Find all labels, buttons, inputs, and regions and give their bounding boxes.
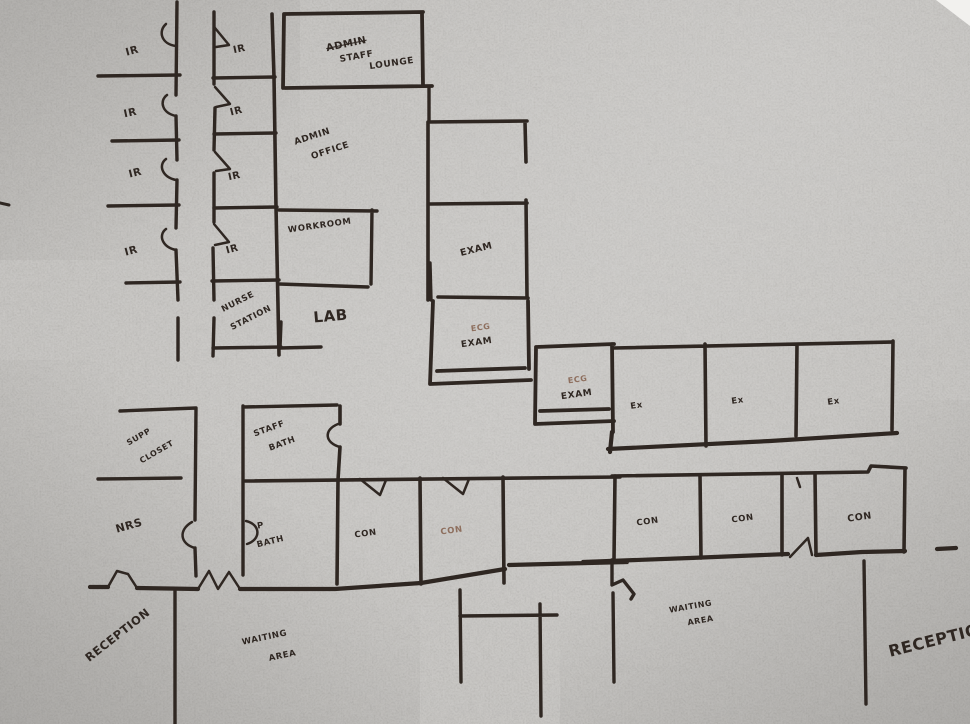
floor-plan-sketch: IRIRIRIRIRIRIRIRADMINSTAFFLOUNGEADMINOFF… <box>0 0 970 724</box>
floor-plan-photo: IRIRIRIRIRIRIRIRADMINSTAFFLOUNGEADMINOFF… <box>0 0 970 724</box>
label-ex-1: Ex <box>630 400 644 412</box>
label-ex-3: Ex <box>827 396 841 408</box>
label-lab: LAB <box>313 306 349 327</box>
label-ex-2: Ex <box>731 395 745 407</box>
